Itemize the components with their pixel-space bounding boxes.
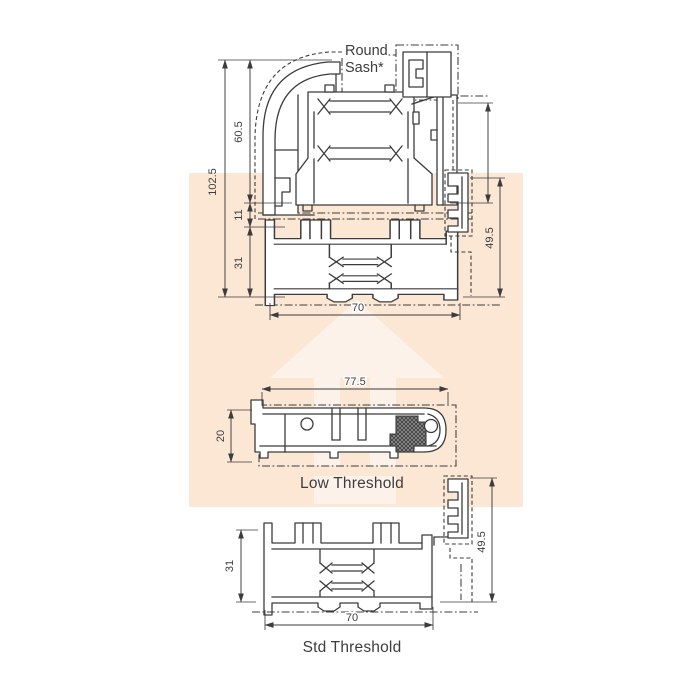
dim-width: 77.5 — [344, 376, 365, 388]
dim-width: 70 — [352, 302, 364, 314]
round-sash-label-line1: Round — [345, 43, 388, 59]
dim-addon-height: 49.5 — [476, 531, 488, 552]
dim-gap: 11 — [233, 209, 245, 220]
dim-height: 20 — [215, 430, 227, 442]
dim-addon-height: 49.5 — [484, 227, 496, 248]
low-threshold-caption: Low Threshold — [300, 475, 404, 492]
dim-base-height: 31 — [233, 257, 245, 269]
addon-upstand-profile — [448, 479, 468, 538]
profile-section-sheet: 102.5 60.5 11 31 49.5 70 Round Sash* 77.… — [0, 0, 700, 700]
std-threshold-profile — [264, 523, 432, 615]
watermark — [189, 173, 523, 507]
dim-sash-height: 60.5 — [233, 121, 245, 142]
std-threshold-caption: Std Threshold — [303, 639, 402, 656]
frame-right-wall — [437, 95, 457, 205]
dim-overall-height: 102.5 — [207, 168, 219, 196]
technical-drawing: 102.5 60.5 11 31 49.5 70 Round Sash* 77.… — [0, 0, 700, 700]
round-sash-label-line2: Sash* — [345, 60, 384, 76]
dim-base-height: 31 — [224, 560, 236, 572]
dim-width: 70 — [346, 612, 358, 624]
